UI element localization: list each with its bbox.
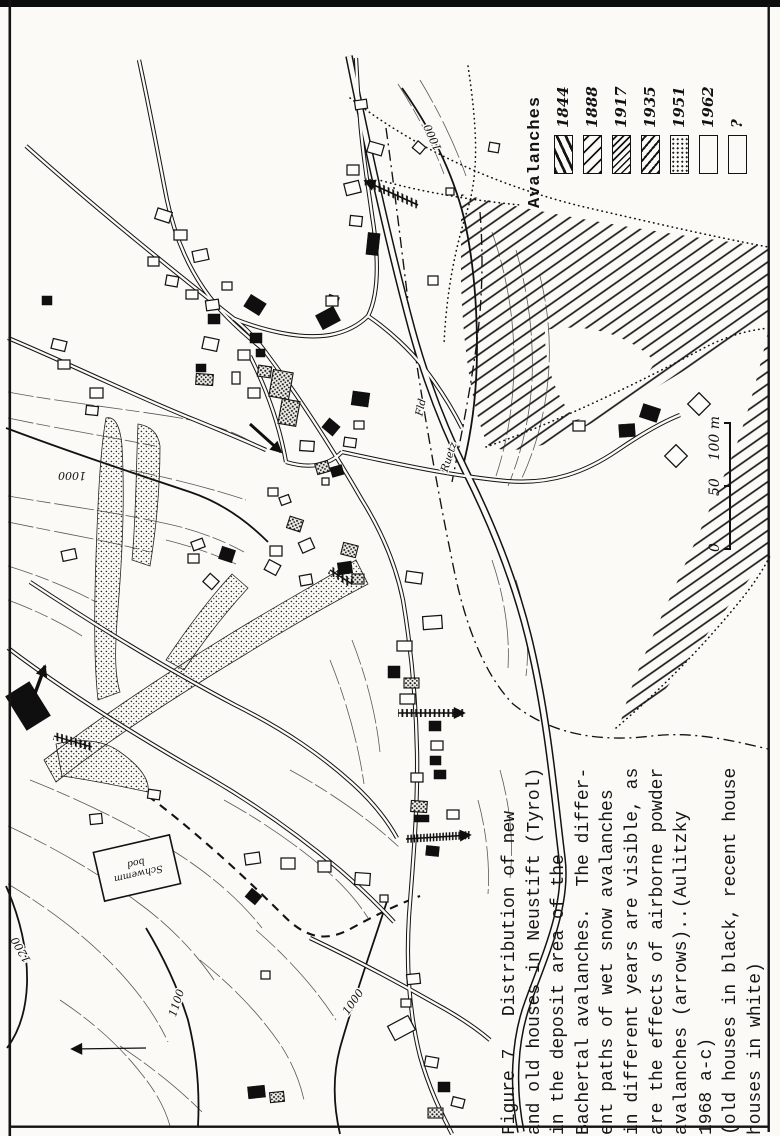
avalanche-stipple-tongue (95, 418, 124, 700)
house-old-black (414, 815, 429, 822)
house-new-white (188, 554, 199, 563)
contour-line (478, 800, 489, 894)
house-stippled (352, 574, 364, 584)
house-old-black (250, 333, 262, 343)
legend-swatch-unknown (728, 135, 747, 174)
legend-year-label: 1962 (699, 86, 717, 128)
road-core (8, 648, 394, 922)
house-new-white (232, 372, 240, 384)
house-new-white (401, 999, 411, 1007)
house-old-black (42, 296, 52, 305)
legend-item-1917: 1917 (612, 78, 630, 210)
house-new-white (203, 573, 219, 589)
caption-line: avalanches (arrows)..(Aulitzky (670, 745, 695, 1135)
house-new-white (447, 810, 459, 819)
contour-label: 1000 (340, 987, 367, 1017)
house-stippled (428, 1108, 443, 1118)
contour-line (120, 1046, 202, 1112)
scale-label-50: 50 (707, 478, 723, 496)
contour-line (290, 770, 400, 848)
legend: Avalanches 1844 1888 1917 1935 1951 1962… (526, 78, 754, 210)
house-new-white (244, 852, 260, 865)
house-new-white (407, 973, 421, 984)
house-new-white (248, 388, 260, 398)
house-old-black (218, 546, 235, 563)
house-old-black (619, 423, 636, 437)
contour-line (330, 660, 364, 784)
house-stippled (278, 399, 300, 427)
caption-line: and old houses in Neustift (Tyrol) (523, 745, 548, 1135)
house-new-white (238, 350, 250, 360)
house-new-white (299, 574, 313, 586)
house-new-white (147, 789, 160, 800)
house-new-white (400, 694, 415, 704)
house-stippled (270, 1091, 285, 1102)
house-new-white (326, 296, 338, 306)
house-stippled (411, 800, 428, 812)
house-new-white (354, 99, 367, 110)
contour-line (8, 392, 258, 446)
house-old-black (388, 666, 400, 678)
house-stippled (404, 678, 419, 688)
contour-line (8, 600, 82, 636)
house-old-black (6, 682, 51, 731)
legend-title: Avalanches (526, 78, 545, 210)
house-new-white (270, 546, 282, 556)
contour-line (8, 496, 244, 552)
caption-line: 1968 a-c) (695, 745, 720, 1135)
house-stippled (315, 460, 331, 474)
contour-label: 1200 (8, 934, 33, 965)
house-stippled (196, 373, 214, 385)
powder-avalanche-arrow (365, 181, 418, 205)
house-new-white (397, 641, 412, 651)
house-old-black (245, 888, 262, 905)
scale-label-0: 0 (707, 543, 723, 552)
legend-item-1888: 1888 (583, 78, 601, 210)
house-new-white (222, 282, 232, 290)
scale-tick (724, 548, 731, 550)
house-new-white (423, 615, 443, 629)
house-new-white (192, 249, 209, 263)
house-old-black (366, 232, 380, 255)
house-old-black (315, 306, 340, 330)
house-stippled (286, 516, 303, 532)
house-old-black (639, 404, 660, 423)
contour-line (8, 522, 150, 552)
avalanche-stipple-tongue (56, 741, 148, 792)
scale-tick (724, 422, 731, 424)
house-old-black (438, 1082, 450, 1092)
house-new-white (350, 215, 363, 226)
house-new-white (411, 773, 423, 782)
scale-bar-line (729, 422, 731, 550)
scale-labels: 0 50 100 m (701, 414, 723, 554)
house-old-black (244, 294, 267, 315)
house-new-white (174, 230, 187, 240)
house-new-white (573, 421, 585, 431)
house-old-black (330, 465, 344, 478)
scale-label-100: 100 m (707, 416, 723, 460)
house-new-white (344, 180, 361, 195)
house-new-white (148, 257, 159, 266)
house-new-white (688, 393, 711, 416)
house-old-black (208, 314, 220, 324)
house-new-white (412, 141, 425, 154)
contour-label: 1100 (166, 988, 187, 1019)
scanned-figure-page: 10001000100011001200RuetzFldSchwemmbod A… (0, 0, 780, 1136)
house-old-black (322, 418, 340, 436)
contour-line (8, 418, 155, 446)
house-new-white (51, 338, 67, 351)
avalanche-hatch-area (461, 194, 768, 450)
house-new-white (665, 445, 688, 468)
legend-year-label: 1888 (583, 86, 601, 128)
river-label: Fld (413, 397, 429, 418)
legend-year-label: ? (728, 119, 746, 128)
contour-line (8, 884, 168, 1042)
caption-line: ent paths of wet snow avalanches (596, 745, 621, 1135)
legend-swatch-1935 (641, 135, 660, 174)
legend-swatch-1951 (670, 135, 689, 174)
legend-item-1962: 1962 (699, 78, 717, 210)
house-new-white (347, 165, 359, 175)
house-new-white (300, 441, 315, 452)
legend-item-1935: 1935 (641, 78, 659, 210)
house-old-black (434, 770, 446, 779)
house-new-white (58, 360, 70, 369)
legend-swatch-1844 (554, 135, 573, 174)
house-new-white (488, 142, 499, 153)
contour-line (352, 640, 380, 752)
house-new-white (322, 478, 329, 485)
house-new-white (90, 388, 103, 398)
avalanche-stipple-tongue (132, 424, 160, 566)
house-old-black (426, 845, 440, 856)
house-new-white (261, 971, 270, 979)
house-new-white (165, 275, 179, 287)
legend-item-unknown: ? (728, 78, 746, 210)
legend-year-label: 1951 (670, 86, 688, 128)
contour-line (60, 1000, 170, 1126)
house-new-white (86, 405, 99, 415)
house-new-white (281, 858, 295, 869)
house-stippled (341, 542, 358, 557)
legend-item-1844: 1844 (554, 78, 572, 210)
caption-line: (old houses in black, recent house (719, 745, 744, 1135)
house-new-white (90, 813, 103, 824)
house-new-white (451, 1097, 465, 1109)
house-old-black (430, 756, 441, 765)
house-new-white (186, 290, 198, 299)
house-new-white (61, 549, 77, 562)
scale-tick (724, 485, 731, 487)
house-stippled (269, 369, 293, 399)
house-new-white (446, 188, 454, 195)
house-new-white (279, 495, 291, 506)
legend-swatch-1888 (583, 135, 602, 174)
legend-swatch-1917 (612, 135, 631, 174)
house-old-black (351, 391, 370, 407)
house-old-black (256, 349, 265, 357)
legend-year-label: 1844 (554, 86, 572, 128)
contour-label: 1000 (58, 469, 86, 482)
legend-swatch-1962 (699, 135, 718, 174)
scale-bar: 0 50 100 m (701, 414, 747, 554)
house-old-black (247, 1085, 265, 1099)
legend-year-label: 1935 (641, 86, 659, 128)
caption-line: in different years are visible, as (621, 745, 646, 1135)
house-old-black (429, 721, 441, 731)
house-new-white (202, 337, 219, 352)
caption-line: Figure 7 Distribution of new (498, 745, 523, 1135)
house-new-white (264, 560, 281, 576)
contour-line (492, 560, 508, 668)
house-new-white (380, 895, 388, 902)
index-contour (146, 928, 199, 1126)
house-new-white (354, 421, 364, 429)
house-new-white (355, 872, 371, 885)
house-old-black (196, 364, 206, 372)
house-new-white (298, 538, 314, 553)
house-stippled (257, 365, 271, 378)
house-new-white (424, 1056, 439, 1068)
house-new-white (428, 276, 438, 285)
caption-line: in the deposit area of the (547, 745, 572, 1135)
house-new-white (205, 299, 219, 311)
house-new-white (343, 437, 356, 448)
legend-year-label: 1917 (612, 86, 630, 128)
figure-caption: Figure 7 Distribution of new and old hou… (498, 745, 770, 1135)
caption-line: Bachertal avalanches. The differ- (572, 745, 597, 1135)
legend-item-1951: 1951 (670, 78, 688, 210)
caption-line: are the effects of airborne powder (646, 745, 671, 1135)
house-new-white (431, 741, 443, 750)
caption-line: houses in white) (744, 745, 769, 1135)
contour-line (200, 960, 304, 1100)
powder-avalanche-arrow (72, 1048, 146, 1049)
house-new-white (191, 538, 205, 551)
house-new-white (268, 488, 278, 496)
house-new-white (405, 571, 422, 584)
house-new-white (318, 861, 331, 872)
